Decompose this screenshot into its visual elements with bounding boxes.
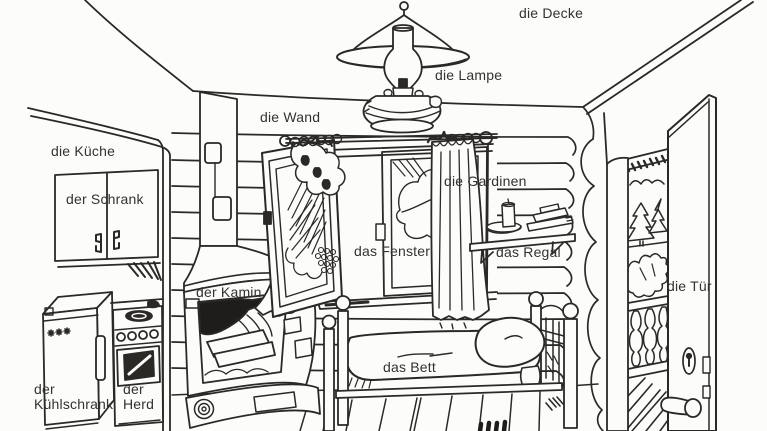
label-schrank: der Schrank bbox=[66, 192, 144, 207]
cupboard-drawing bbox=[55, 170, 161, 280]
label-kuehlschrank: der Kühlschrank bbox=[34, 382, 113, 411]
label-decke: die Decke bbox=[519, 6, 583, 21]
vocabulary-illustration: die Decke die Lampe die Wand die Küche d… bbox=[0, 0, 767, 431]
open-sash bbox=[262, 140, 345, 317]
door-hinge bbox=[703, 386, 710, 398]
floor-rug-fragment bbox=[480, 422, 505, 431]
label-herd: der Herd bbox=[123, 382, 154, 411]
label-gardinen: die Gardinen bbox=[444, 174, 527, 189]
label-kuehlschrank-line2: Kühlschrank bbox=[34, 397, 113, 412]
label-lampe: die Lampe bbox=[435, 68, 502, 83]
door-drawing bbox=[604, 95, 716, 431]
label-herd-line1: der bbox=[123, 382, 154, 397]
door-hinge bbox=[703, 357, 710, 373]
label-kuehlschrank-line1: der bbox=[34, 382, 113, 397]
label-bett: das Bett bbox=[383, 360, 436, 375]
label-kamin: der Kamin bbox=[196, 285, 262, 300]
label-fenster: das Fenster bbox=[354, 244, 430, 259]
label-wand: die Wand bbox=[260, 110, 320, 125]
label-kueche: die Küche bbox=[51, 144, 115, 159]
chimney bbox=[200, 92, 255, 262]
label-herd-line2: Herd bbox=[123, 397, 154, 412]
label-tuer: die Tür bbox=[667, 279, 712, 294]
door-leaf bbox=[661, 95, 716, 431]
label-regal: das Regal bbox=[496, 245, 561, 260]
